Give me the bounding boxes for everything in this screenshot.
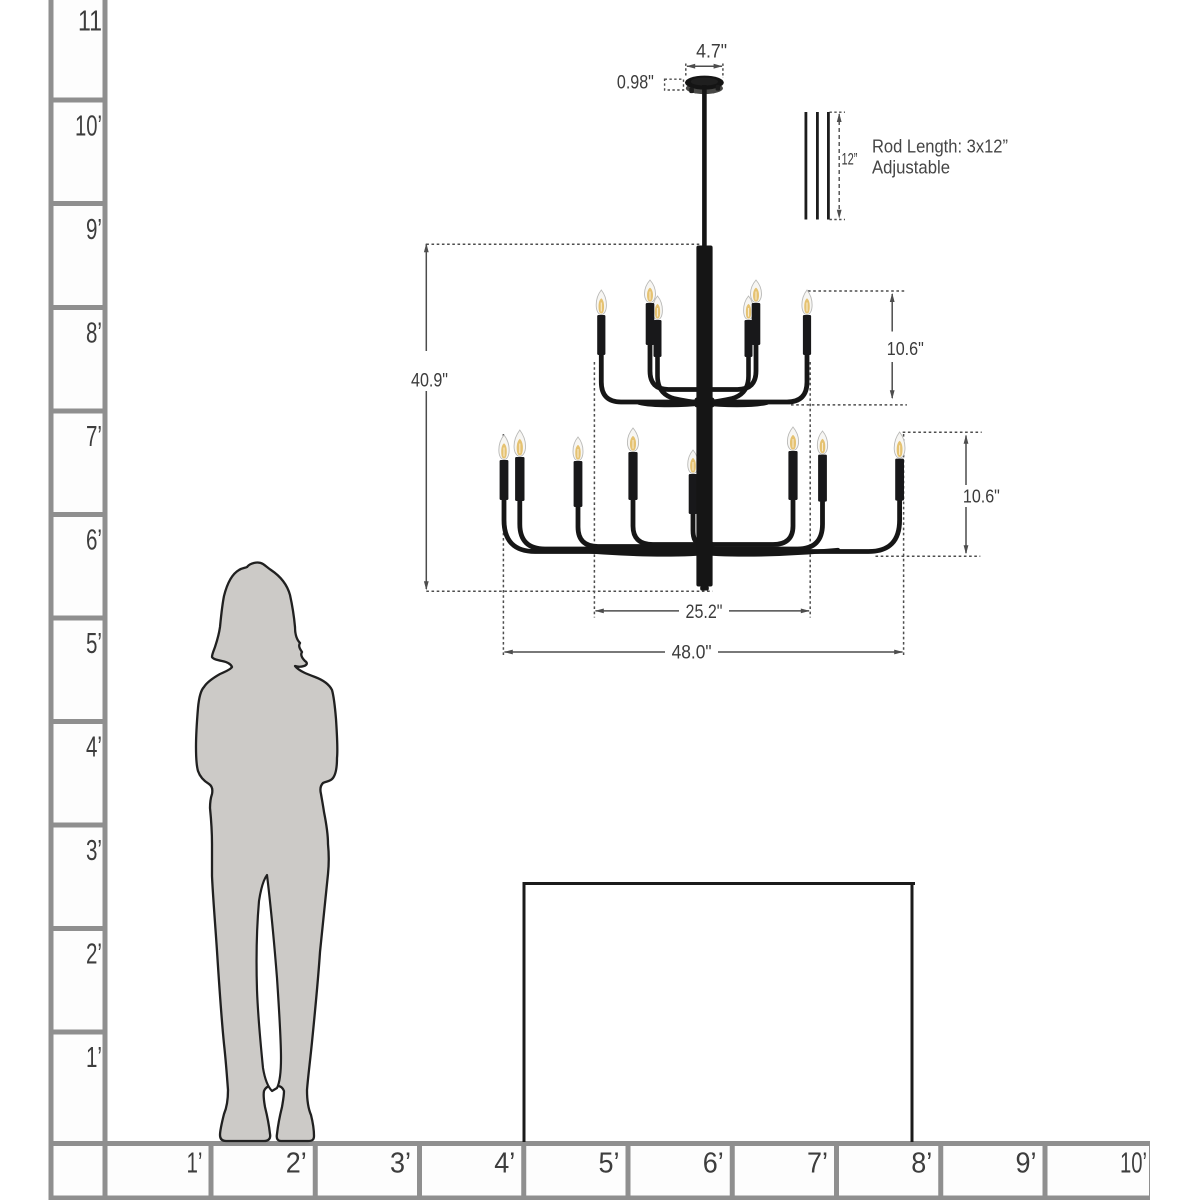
svg-text:2’: 2’ bbox=[286, 1148, 307, 1180]
svg-text:11: 11 bbox=[78, 6, 102, 38]
svg-text:4’: 4’ bbox=[494, 1148, 515, 1180]
svg-text:10.6": 10.6" bbox=[887, 339, 924, 359]
svg-text:6’: 6’ bbox=[86, 525, 102, 557]
svg-text:4’: 4’ bbox=[86, 732, 102, 764]
svg-text:1’: 1’ bbox=[187, 1148, 203, 1180]
svg-text:7’: 7’ bbox=[86, 421, 102, 453]
svg-text:9’: 9’ bbox=[1016, 1148, 1037, 1180]
svg-text:6’: 6’ bbox=[703, 1148, 724, 1180]
svg-text:2’: 2’ bbox=[86, 939, 102, 971]
svg-text:4.7": 4.7" bbox=[696, 42, 727, 63]
svg-text:10.6": 10.6" bbox=[963, 486, 1000, 506]
svg-text:5’: 5’ bbox=[86, 628, 102, 660]
svg-text:25.2": 25.2" bbox=[686, 602, 723, 623]
svg-text:10’: 10’ bbox=[1120, 1148, 1147, 1180]
svg-text:0.98": 0.98" bbox=[617, 72, 654, 93]
svg-text:3’: 3’ bbox=[86, 835, 102, 867]
svg-text:7’: 7’ bbox=[807, 1148, 828, 1180]
svg-text:Adjustable: Adjustable bbox=[872, 157, 950, 178]
svg-text:8’: 8’ bbox=[86, 318, 102, 350]
svg-text:40.9": 40.9" bbox=[411, 370, 448, 391]
svg-text:5’: 5’ bbox=[599, 1148, 620, 1180]
svg-text:48.0": 48.0" bbox=[672, 643, 712, 664]
svg-text:3’: 3’ bbox=[390, 1148, 411, 1180]
svg-text:12”: 12” bbox=[842, 150, 858, 169]
svg-text:8’: 8’ bbox=[911, 1148, 932, 1180]
svg-text:9’: 9’ bbox=[86, 214, 102, 246]
svg-text:10’: 10’ bbox=[75, 111, 102, 143]
svg-text:Rod Length: 3x12”: Rod Length: 3x12” bbox=[872, 136, 1008, 157]
svg-text:1’: 1’ bbox=[86, 1042, 102, 1074]
